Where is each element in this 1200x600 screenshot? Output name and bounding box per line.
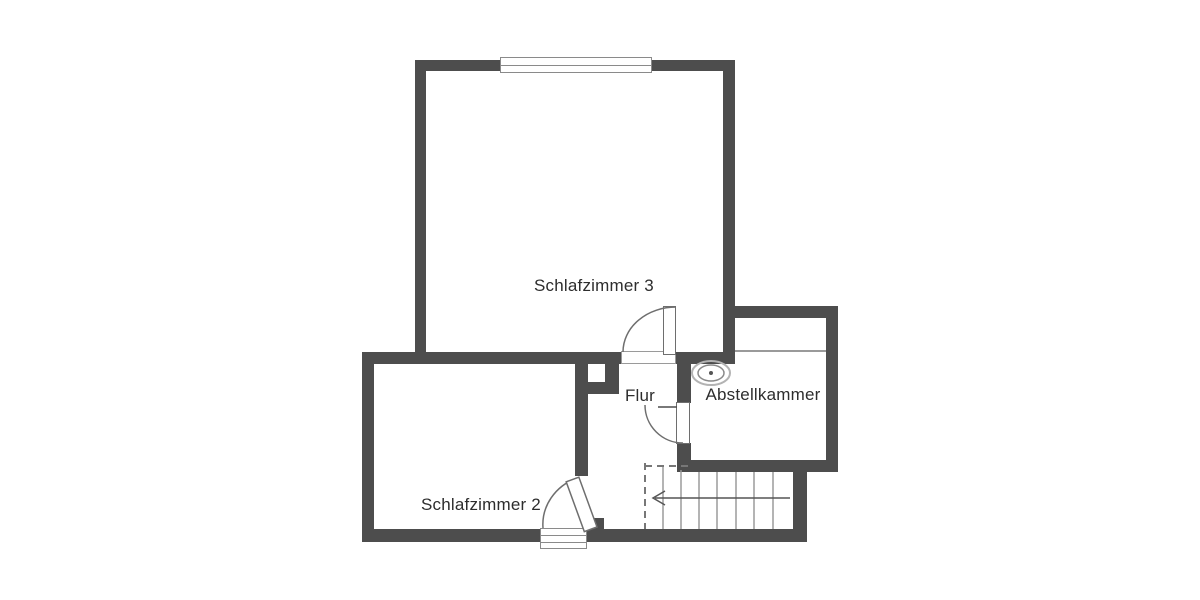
door-arc-schlafzimmer2 [543, 478, 577, 528]
room-label-flur: Flur [625, 386, 655, 406]
stairs [663, 467, 773, 529]
wall-abstellkammer-right [826, 306, 838, 472]
wall-schlafzimmer3-right [723, 60, 735, 364]
door-schlafzimmer3-leaf [663, 306, 676, 355]
wall-abstellkammer-bottom [677, 460, 838, 472]
wall-schlafzimmer2-flur [575, 364, 588, 476]
window-pane-line [541, 535, 586, 536]
window-schlafzimmer2 [540, 528, 587, 549]
window-schlafzimmer3 [500, 57, 652, 73]
stairs-direction-arrow-icon [653, 491, 790, 505]
ceiling-lamp-icon [692, 361, 730, 385]
roof-slope-line [735, 350, 826, 352]
chimney-shaft-bottom [588, 382, 619, 394]
room-label-abstellkammer: Abstellkammer [705, 385, 820, 405]
floor-plan: Schlafzimmer 3 Schlafzimmer 2 Flur Abste… [0, 0, 1200, 600]
plan-symbols [0, 0, 1200, 600]
wall-schlafzimmer2-door-jamb [588, 518, 604, 529]
wall-abstellkammer-top [735, 306, 838, 318]
room-label-schlafzimmer-2: Schlafzimmer 2 [421, 495, 541, 515]
wall-middle-band-right [676, 352, 735, 364]
room-label-schlafzimmer-3: Schlafzimmer 3 [534, 276, 654, 296]
window-pane-line [541, 542, 586, 543]
wall-abstellkammer-left-upper [677, 364, 691, 403]
wall-stairwell-right [793, 460, 807, 542]
wall-schlafzimmer2-left [362, 352, 374, 542]
wall-middle-band-left [362, 352, 621, 364]
door-abstellkammer-leaf [676, 402, 690, 444]
window-pane-line [501, 65, 651, 66]
wall-schlafzimmer3-left [415, 60, 426, 364]
